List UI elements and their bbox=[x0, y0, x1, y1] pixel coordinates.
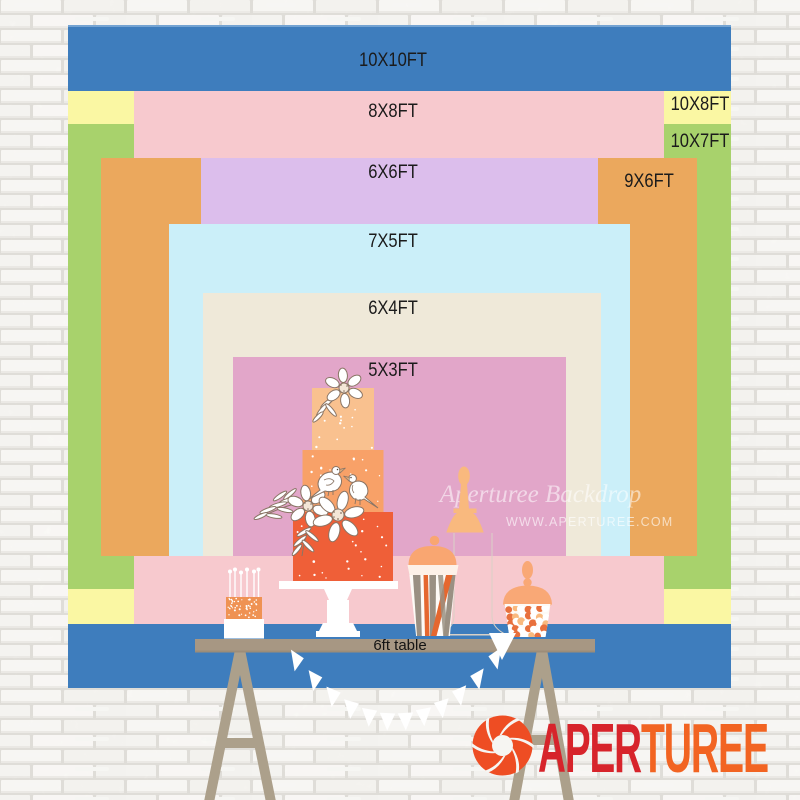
svg-text:6ft table: 6ft table bbox=[373, 637, 426, 654]
svg-text:TUREE: TUREE bbox=[641, 709, 768, 787]
svg-text:APER: APER bbox=[538, 709, 642, 787]
